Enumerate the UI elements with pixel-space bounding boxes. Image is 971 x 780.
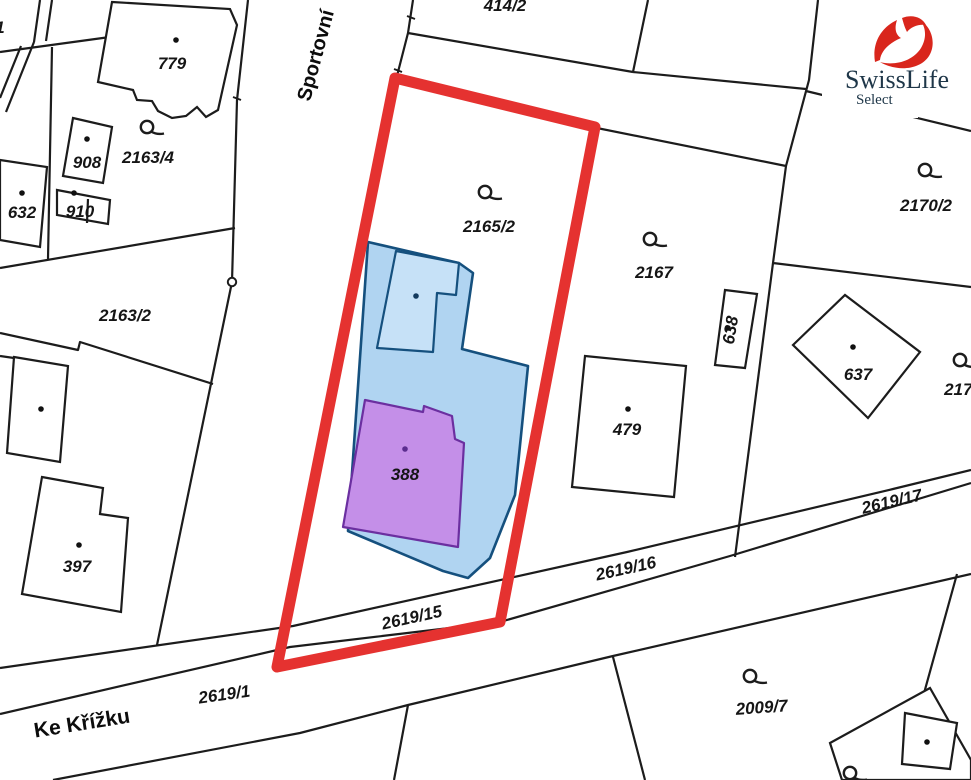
building-dot-icon: [76, 542, 82, 548]
building-dot-icon: [413, 293, 419, 299]
parcel-label-2163-2: 2163/2: [98, 306, 152, 325]
building-dot-icon: [84, 136, 90, 142]
building-unlabeled-shape: [7, 357, 68, 462]
logo-brand-text: SwissLife: [845, 65, 949, 94]
building-dot-icon: [924, 739, 930, 745]
cadastral-map: 414/2 779 2163/4 908 910 632 2163/2 2165…: [0, 0, 971, 780]
boundary-point-icon: [228, 278, 236, 286]
building-908-shape: [63, 118, 112, 183]
building-label-388: 388: [391, 465, 420, 484]
map-canvas: 414/2 779 2163/4 908 910 632 2163/2 2165…: [0, 0, 971, 780]
parcel-label-2170-clipped: 2170: [943, 380, 971, 399]
building-label-908: 908: [73, 153, 102, 172]
building-label-632: 632: [8, 203, 37, 222]
building-label-910: 910: [66, 202, 95, 221]
parcel-label-clipped-left: 1: [0, 18, 5, 37]
logo-sub-text: Select: [856, 92, 893, 108]
building-dot-icon: [19, 190, 25, 196]
parcel-label-2170-2: 2170/2: [899, 196, 953, 215]
parcel-label-2165-2: 2165/2: [462, 217, 516, 236]
building-label-479: 479: [612, 420, 642, 439]
parcel-label-2163-4: 2163/4: [121, 148, 175, 167]
parcel-label-2167: 2167: [634, 263, 674, 282]
building-dot-icon: [850, 344, 856, 350]
building-label-637: 637: [844, 365, 874, 384]
building-dot-icon: [173, 37, 179, 43]
building-dot-icon: [402, 446, 408, 452]
building-label-779: 779: [158, 54, 187, 73]
building-label-397: 397: [63, 557, 93, 576]
building-dot-icon: [71, 190, 77, 196]
building-dot-icon: [625, 406, 631, 412]
building-dot-icon: [38, 406, 44, 412]
parcel-label-414-2: 414/2: [483, 0, 527, 15]
parcel-label-2009-7: 2009/7: [734, 696, 790, 719]
